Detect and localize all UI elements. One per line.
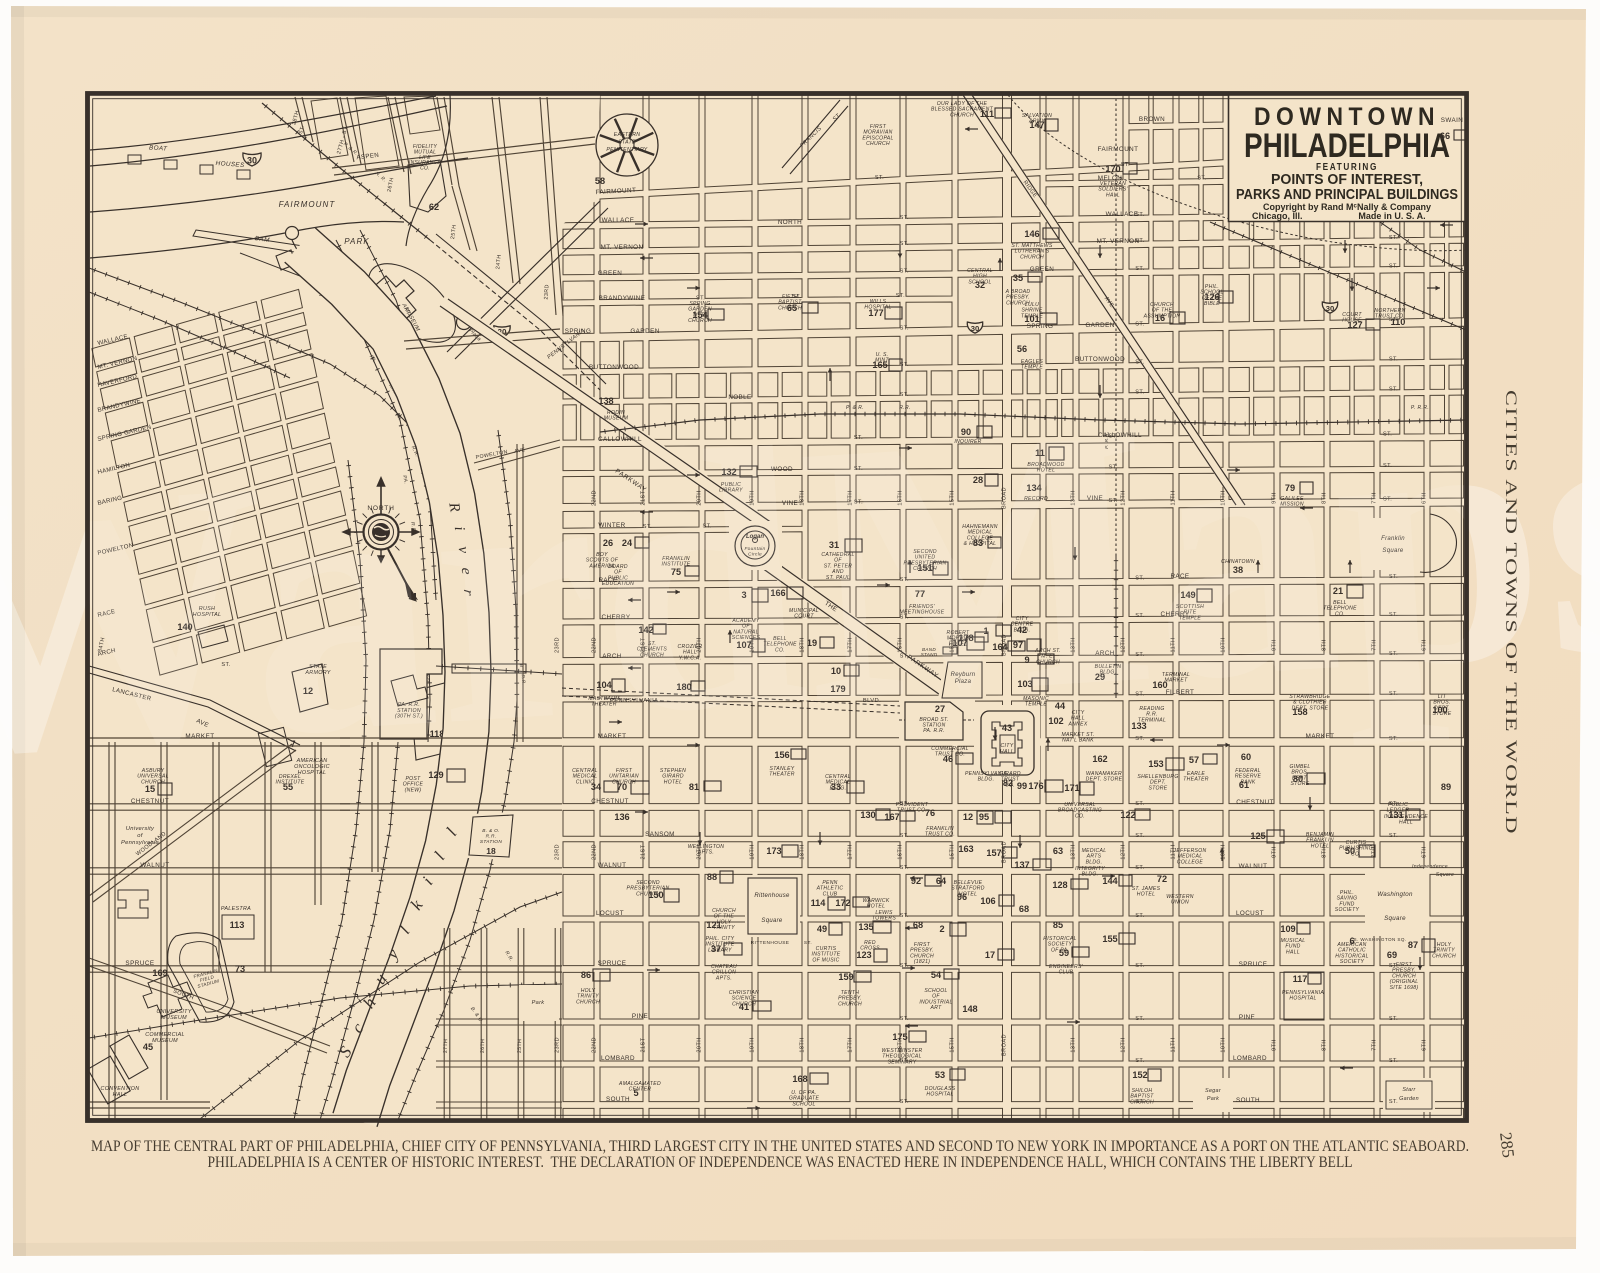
svg-text:27TH: 27TH [443, 1039, 449, 1053]
svg-text:30: 30 [971, 324, 980, 333]
svg-text:BOAT: BOAT [149, 144, 168, 152]
svg-text:ST.: ST. [900, 865, 909, 871]
svg-text:11TH: 11TH [1171, 1038, 1177, 1053]
svg-text:SITE 1698): SITE 1698) [1390, 985, 1419, 991]
svg-text:18TH: 18TH [800, 1037, 806, 1052]
svg-text:TRUST CO.: TRUST CO. [1375, 314, 1405, 320]
svg-text:TRUST CO.: TRUST CO. [925, 832, 955, 838]
svg-text:135: 135 [858, 922, 873, 932]
svg-text:144: 144 [1102, 876, 1118, 886]
svg-text:GREEN: GREEN [598, 270, 622, 277]
svg-text:PINE: PINE [1239, 1014, 1255, 1021]
svg-text:CHURCH: CHURCH [950, 112, 974, 118]
svg-text:SPRUCE: SPRUCE [598, 960, 627, 967]
svg-text:146: 146 [1024, 229, 1039, 239]
svg-text:ST.: ST. [1389, 1058, 1398, 1064]
svg-text:CHURCH: CHURCH [778, 305, 802, 311]
svg-text:87: 87 [1408, 940, 1418, 950]
svg-text:SOUTH: SOUTH [1236, 1097, 1260, 1104]
svg-text:17TH: 17TH [848, 844, 854, 859]
svg-text:Independence: Independence [1412, 864, 1448, 870]
svg-text:TOWERS: TOWERS [872, 916, 896, 922]
svg-text:BROAD: BROAD [1002, 1034, 1008, 1056]
svg-text:12: 12 [963, 812, 973, 822]
svg-text:19TH: 19TH [750, 1037, 756, 1052]
svg-text:APTS.: APTS. [697, 850, 714, 856]
svg-text:ART: ART [930, 1005, 943, 1011]
svg-text:TRINITY: TRINITY [713, 925, 735, 931]
svg-text:GARDEN: GARDEN [1085, 322, 1114, 329]
svg-text:WALNUT: WALNUT [1239, 863, 1268, 870]
svg-text:18TH: 18TH [800, 844, 806, 859]
svg-text:WALNUT: WALNUT [598, 862, 627, 869]
svg-text:157: 157 [986, 848, 1001, 858]
svg-text:SEMINARY: SEMINARY [888, 1059, 917, 1065]
svg-text:WALLACE: WALLACE [602, 217, 635, 224]
svg-text:BROAD: BROAD [1002, 841, 1008, 863]
svg-text:9TH: 9TH [1272, 1039, 1278, 1051]
svg-text:R.R.: R.R. [486, 833, 497, 839]
svg-text:CROSS: CROSS [860, 946, 880, 952]
svg-text:66: 66 [1440, 131, 1450, 141]
svg-text:106: 106 [980, 896, 995, 906]
svg-text:CHESTNUT: CHESTNUT [1236, 799, 1273, 806]
svg-text:2: 2 [939, 924, 944, 934]
svg-text:PARKS AND PRINCIPAL BUILDINGS: PARKS AND PRINCIPAL BUILDINGS [1236, 187, 1458, 203]
svg-text:ST.: ST. [804, 940, 812, 946]
svg-text:21ST: 21ST [641, 844, 647, 859]
svg-text:SOUTH: SOUTH [606, 1096, 630, 1103]
svg-text:ST.: ST. [900, 1016, 909, 1022]
svg-text:155: 155 [1102, 934, 1117, 944]
svg-text:LOMBARD: LOMBARD [1233, 1055, 1267, 1062]
svg-text:175: 175 [892, 1032, 907, 1042]
svg-text:CHURCH: CHURCH [732, 1001, 756, 1007]
svg-text:ST.: ST. [1197, 176, 1206, 182]
svg-text:23RD: 23RD [555, 844, 561, 860]
svg-text:BLDG.: BLDG. [1082, 872, 1099, 878]
svg-text:OF PA.: OF PA. [1051, 947, 1069, 953]
svg-text:CHURCH: CHURCH [866, 141, 890, 147]
svg-text:UNION: UNION [1171, 900, 1189, 906]
svg-text:12TH: 12TH [1121, 1037, 1127, 1052]
svg-text:ST.: ST. [1389, 1099, 1398, 1105]
svg-text:ST.: ST. [900, 833, 909, 839]
svg-text:ST.: ST. [900, 268, 909, 274]
svg-text:ST.: ST. [1135, 833, 1144, 839]
svg-text:CHURCH: CHURCH [576, 999, 600, 1005]
svg-text:88: 88 [707, 872, 717, 882]
svg-text:Segar: Segar [1205, 1088, 1221, 1094]
svg-text:CHESTNUT: CHESTNUT [591, 798, 628, 805]
svg-text:15TH: 15TH [950, 1037, 956, 1052]
svg-text:ST.: ST. [1135, 212, 1144, 218]
svg-text:128: 128 [1052, 880, 1067, 890]
svg-text:MUSEUM: MUSEUM [152, 1038, 178, 1044]
svg-text:6TH: 6TH [1422, 1039, 1428, 1051]
svg-text:148: 148 [962, 1004, 977, 1014]
svg-text:173: 173 [766, 846, 781, 856]
svg-text:176: 176 [1028, 781, 1043, 791]
svg-text:CO.: CO. [1005, 782, 1015, 788]
svg-text:HALL: HALL [1286, 949, 1300, 955]
svg-text:ST.: ST. [1135, 238, 1144, 244]
svg-text:21ST: 21ST [641, 1037, 647, 1052]
svg-text:CLUB: CLUB [1059, 970, 1074, 976]
svg-text:Park: Park [532, 1000, 546, 1006]
svg-text:OF MUSIC: OF MUSIC [812, 957, 839, 963]
svg-text:TEMPLE: TEMPLE [1021, 313, 1043, 319]
svg-text:53: 53 [935, 1070, 945, 1080]
svg-text:University: University [126, 826, 155, 832]
svg-text:ST.: ST. [875, 175, 884, 181]
svg-text:56: 56 [1017, 344, 1027, 354]
svg-text:26TH: 26TH [480, 1039, 486, 1053]
svg-text:SOCIETY: SOCIETY [1340, 959, 1365, 965]
svg-text:22ND: 22ND [592, 844, 598, 860]
svg-text:68: 68 [1019, 904, 1029, 914]
svg-text:HOSPITAL: HOSPITAL [864, 305, 891, 311]
svg-text:DEPT. STORE: DEPT. STORE [1086, 777, 1123, 783]
svg-text:23RD: 23RD [555, 1037, 561, 1053]
svg-text:ST.: ST. [1389, 1016, 1398, 1022]
svg-text:HALL: HALL [113, 1092, 128, 1098]
svg-text:117: 117 [1293, 974, 1308, 984]
svg-text:LOCUST: LOCUST [596, 910, 624, 917]
svg-text:86: 86 [581, 970, 591, 980]
svg-text:FAIRMOUNT: FAIRMOUNT [279, 200, 336, 209]
svg-text:MT. VERNON: MT. VERNON [601, 244, 644, 251]
svg-text:MINT: MINT [875, 358, 889, 364]
svg-text:7TH: 7TH [1372, 1039, 1378, 1051]
svg-text:25TH: 25TH [517, 1039, 523, 1053]
svg-text:Rittenhouse: Rittenhouse [754, 893, 790, 899]
svg-text:HOSPITAL: HOSPITAL [1289, 996, 1316, 1002]
svg-text:PHILADELPHIA IS A CENTER OF HI: PHILADELPHIA IS A CENTER OF HISTORIC INT… [208, 1154, 1353, 1171]
svg-text:58: 58 [595, 176, 605, 186]
svg-text:STORE: STORE [1291, 781, 1310, 787]
svg-text:Square: Square [761, 918, 783, 924]
svg-text:PALESTRA: PALESTRA [221, 906, 251, 912]
svg-text:PHILADELPHIA: PHILADELPHIA [1244, 127, 1450, 165]
svg-text:Square: Square [1384, 915, 1406, 922]
svg-text:153: 153 [1148, 759, 1163, 769]
svg-text:BRANDYWINE: BRANDYWINE [599, 295, 646, 302]
svg-text:137: 137 [1014, 860, 1029, 870]
svg-text:6TH: 6TH [1422, 846, 1428, 858]
svg-text:ARMY: ARMY [1028, 119, 1045, 125]
svg-text:NORTH: NORTH [778, 219, 802, 226]
svg-text:8TH: 8TH [1322, 1039, 1328, 1051]
svg-text:HOTEL: HOTEL [1311, 843, 1329, 849]
svg-text:49: 49 [817, 924, 827, 934]
svg-text:92: 92 [911, 876, 921, 886]
svg-text:MT. VERNON: MT. VERNON [1097, 238, 1140, 245]
svg-text:Garden: Garden [1399, 1096, 1419, 1102]
svg-text:CHURCH: CHURCH [1130, 1099, 1154, 1105]
svg-text:ST.: ST. [900, 913, 909, 919]
svg-text:ST.: ST. [1135, 963, 1144, 969]
svg-text:CLUB: CLUB [823, 891, 838, 897]
svg-text:13TH: 13TH [1071, 844, 1077, 859]
svg-text:SCHOOL: SCHOOL [792, 1101, 815, 1107]
svg-text:17: 17 [985, 950, 995, 960]
svg-text:HOUSE: HOUSE [1342, 318, 1362, 324]
svg-text:SANSOM: SANSOM [645, 831, 675, 838]
svg-text:63: 63 [1053, 846, 1063, 856]
svg-text:CO.: CO. [1075, 813, 1085, 819]
svg-text:ST.: ST. [900, 1099, 909, 1105]
svg-text:ST.: ST. [900, 215, 909, 221]
svg-text:STATE: STATE [618, 139, 636, 145]
svg-text:95: 95 [979, 812, 989, 822]
svg-text:68: 68 [913, 920, 923, 930]
svg-text:WALLACE: WALLACE [1106, 211, 1139, 218]
svg-text:(1821): (1821) [914, 959, 931, 965]
svg-text:HALL: HALL [1106, 192, 1120, 198]
svg-text:EASTERN: EASTERN [614, 132, 641, 138]
svg-text:69: 69 [1387, 950, 1397, 960]
svg-text:15TH: 15TH [950, 844, 956, 859]
svg-text:ST.: ST. [1135, 1058, 1144, 1064]
svg-text:STORE: STORE [1149, 785, 1168, 791]
svg-text:ST.: ST. [896, 293, 905, 299]
svg-text:Made in U. S. A.: Made in U. S. A. [1358, 211, 1425, 221]
svg-text:54: 54 [931, 970, 942, 980]
svg-text:30: 30 [247, 156, 257, 166]
svg-text:SCHOOL: SCHOOL [968, 279, 991, 285]
svg-text:72: 72 [1157, 874, 1167, 884]
svg-text:BROWN: BROWN [1139, 116, 1165, 123]
svg-text:STATION: STATION [480, 839, 502, 845]
svg-text:9TH: 9TH [1272, 846, 1278, 858]
svg-text:COLLEGE: COLLEGE [1177, 859, 1203, 865]
svg-text:HOSPITAL: HOSPITAL [926, 1092, 953, 1098]
svg-text:152: 152 [1132, 1070, 1147, 1080]
svg-text:Square: Square [1436, 872, 1454, 878]
svg-text:LEDGER: LEDGER [1387, 808, 1410, 814]
svg-text:136: 136 [614, 812, 629, 822]
svg-text:171: 171 [1064, 783, 1079, 793]
svg-text:ST.: ST. [1389, 264, 1398, 270]
svg-text:PENITENTIARY: PENITENTIARY [606, 147, 647, 153]
svg-text:73: 73 [235, 964, 245, 974]
svg-text:Washington: Washington [1377, 891, 1413, 898]
svg-text:BUTTONWOOD: BUTTONWOOD [589, 364, 639, 371]
svg-text:FAIRMOUNT: FAIRMOUNT [1098, 146, 1139, 153]
svg-text:285: 285 [1496, 1131, 1518, 1159]
svg-text:Starr: Starr [1402, 1087, 1415, 1093]
svg-text:HOTEL: HOTEL [1137, 892, 1155, 898]
svg-text:ST.: ST. [1135, 865, 1144, 871]
svg-text:HOTEL: HOTEL [867, 904, 885, 910]
svg-text:Pennsylvania: Pennsylvania [121, 840, 160, 846]
svg-text:170: 170 [1105, 164, 1120, 174]
svg-text:BANK: BANK [1240, 779, 1255, 785]
svg-text:GARDEN: GARDEN [630, 328, 659, 335]
svg-text:SWAIN: SWAIN [1441, 117, 1463, 124]
svg-text:89: 89 [1441, 782, 1451, 792]
svg-text:163: 163 [958, 844, 973, 854]
svg-text:ST.: ST. [900, 326, 909, 332]
svg-text:159: 159 [838, 972, 853, 982]
svg-text:ST.: ST. [1135, 801, 1144, 807]
svg-text:HALL: HALL [1399, 820, 1413, 826]
svg-text:122: 122 [1120, 810, 1135, 820]
svg-text:172: 172 [835, 898, 850, 908]
svg-text:APTS.: APTS. [715, 975, 732, 981]
svg-text:CO.: CO. [420, 166, 430, 172]
svg-text:SPRUCE: SPRUCE [1239, 961, 1268, 968]
svg-text:CENTER: CENTER [629, 1087, 652, 1093]
svg-text:17TH: 17TH [848, 1037, 854, 1052]
svg-text:130: 130 [860, 810, 875, 820]
svg-text:19TH: 19TH [750, 844, 756, 859]
svg-text:12TH: 12TH [1121, 844, 1127, 859]
svg-text:TRUST CO.: TRUST CO. [897, 808, 927, 814]
svg-text:Park: Park [1207, 1096, 1219, 1102]
svg-text:MAP OF THE CENTRAL PART OF PHI: MAP OF THE CENTRAL PART OF PHILADELPHIA,… [91, 1138, 1469, 1155]
svg-text:BLDG.: BLDG. [978, 777, 995, 783]
svg-text:64: 64 [936, 876, 947, 886]
svg-text:CHURCH: CHURCH [688, 318, 712, 324]
svg-text:35: 35 [1013, 273, 1023, 283]
svg-text:CHURCH: CHURCH [1020, 254, 1044, 260]
svg-text:ST.: ST. [1135, 266, 1144, 272]
svg-text:ST.: ST. [1135, 322, 1144, 328]
svg-text:MUSEUM: MUSEUM [161, 1015, 187, 1021]
svg-text:114: 114 [811, 898, 827, 908]
svg-text:POINTS OF INTEREST,: POINTS OF INTEREST, [1271, 172, 1423, 188]
svg-text:LOCUST: LOCUST [1236, 910, 1264, 917]
svg-text:125: 125 [1250, 831, 1265, 841]
svg-text:CHURCH: CHURCH [1432, 953, 1456, 959]
svg-text:WALNUT: WALNUT [140, 862, 169, 869]
svg-text:RITTENHOUSE: RITTENHOUSE [751, 940, 790, 946]
svg-text:Chicago, Ill.: Chicago, Ill. [1252, 211, 1303, 221]
svg-text:BLDG.: BLDG. [1086, 859, 1103, 865]
svg-text:B. & O.: B. & O. [482, 828, 500, 834]
svg-text:THEATER: THEATER [1183, 777, 1209, 783]
svg-text:18: 18 [486, 846, 496, 856]
svg-text:HOTEL: HOTEL [959, 891, 977, 897]
svg-text:16TH: 16TH [898, 844, 904, 859]
svg-text:113: 113 [230, 920, 245, 930]
svg-text:23RD: 23RD [543, 284, 550, 300]
svg-text:20TH: 20TH [697, 1037, 703, 1052]
svg-text:ASSUMPTION: ASSUMPTION [1143, 313, 1181, 319]
svg-text:CHURCH: CHURCH [636, 891, 660, 897]
svg-text:ST.: ST. [1135, 913, 1144, 919]
svg-text:CITIES AND TOWNS OF THE WORLD: CITIES AND TOWNS OF THE WORLD [1502, 390, 1519, 835]
svg-text:ST.: ST. [1135, 1016, 1144, 1022]
svg-text:ST.: ST. [1389, 235, 1398, 241]
svg-text:BLDG.: BLDG. [830, 785, 847, 791]
svg-text:85: 85 [1053, 920, 1063, 930]
svg-text:30: 30 [1326, 304, 1335, 313]
svg-text:22ND: 22ND [592, 1037, 598, 1053]
svg-text:LIBRARY: LIBRARY [708, 947, 732, 953]
svg-text:10TH: 10TH [1221, 1037, 1227, 1052]
svg-text:SPRING: SPRING [565, 328, 592, 335]
svg-text:ST.: ST. [1389, 833, 1398, 839]
svg-text:CHURCH: CHURCH [838, 1001, 862, 1007]
svg-text:SOCIETY: SOCIETY [1335, 907, 1360, 913]
svg-text:SPRUCE: SPRUCE [125, 960, 154, 967]
svg-text:168: 168 [792, 1074, 807, 1084]
svg-text:ST.: ST. [900, 241, 909, 247]
svg-text:LOMBARD: LOMBARD [601, 1055, 635, 1062]
svg-text:13TH: 13TH [1071, 1037, 1077, 1052]
svg-text:BIBLE: BIBLE [1204, 301, 1220, 307]
svg-text:CO.: CO. [1351, 851, 1361, 857]
svg-text:109: 109 [1280, 924, 1295, 934]
svg-text:PINE: PINE [632, 1013, 648, 1020]
